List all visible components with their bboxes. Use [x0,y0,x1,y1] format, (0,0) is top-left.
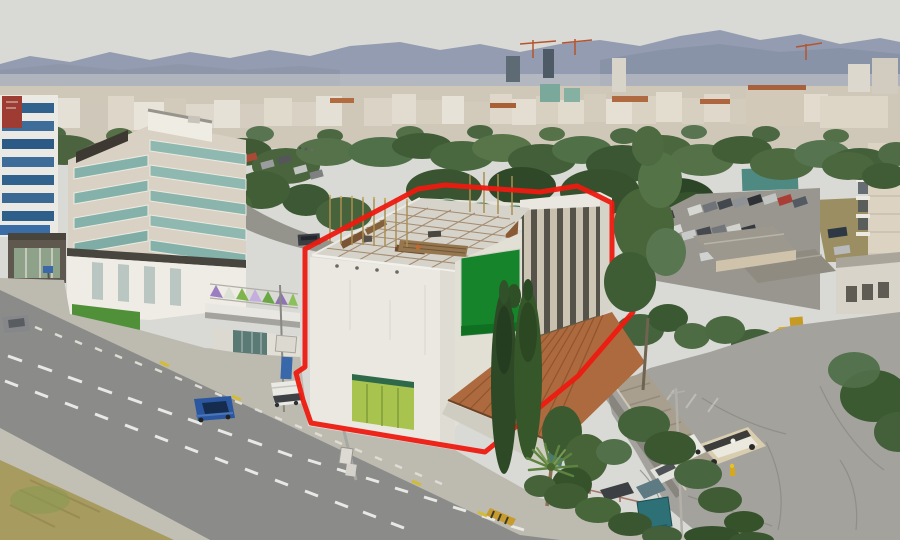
city-skyline-17 [416,100,442,124]
foreground-trees-26 [674,459,722,489]
city-skyline-9 [214,100,240,128]
white-tower [612,58,626,92]
facade-fin [563,202,570,328]
city-skyline-60 [681,125,707,139]
left-buildings-3 [2,139,54,149]
city-skyline-47 [540,84,560,102]
orange-roof [330,98,354,103]
shop-windows [14,248,60,278]
foreground-trees-18 [547,463,555,471]
facade-fin [589,199,596,320]
subject-building-54 [329,195,331,197]
subject-building-59 [384,198,386,200]
facade-fin [550,204,557,333]
city-skyline-27 [656,92,682,122]
left-buildings-6 [2,193,54,203]
subject-building-38 [375,268,379,272]
parapet-pane-lilac [249,289,262,302]
billboard [275,335,296,353]
road-sign [345,463,357,476]
city-skyline-23 [558,100,584,124]
city-skyline-25 [606,99,632,124]
foreground-trees-27 [698,487,742,513]
hi-vis-worker [730,464,734,468]
parking-area-28 [705,316,745,344]
city-skyline-38 [820,96,888,128]
city-skyline-10 [240,104,264,128]
city-skyline-12 [292,102,316,126]
orange-roof [612,96,648,102]
far-right-buildings-20 [862,284,873,300]
left-buildings-4 [2,157,54,167]
subject-building-56 [351,196,353,198]
facade-fin [576,200,583,324]
pedestrian [299,147,302,150]
subject-building-61 [406,199,408,201]
city-skyline-5 [108,96,134,130]
orange-roof [748,85,806,90]
city-skyline-19 [464,102,490,124]
foreground-trees-28 [596,439,632,465]
scene-svg [0,0,900,540]
bottom-right-lot-15 [731,439,736,444]
red-banner [2,96,22,128]
bottom-right-lot-24 [730,468,735,476]
ground-18 [202,401,229,414]
city-skyline-29 [704,94,730,122]
ground-21 [226,415,231,420]
city-skyline-58 [539,127,565,141]
subject-building-34 [440,270,455,448]
foreground-trees-25 [644,431,696,465]
glass-door [92,262,103,300]
far-right-buildings-21 [878,282,889,298]
foreground-trees-5 [523,279,533,301]
city-skyline-24 [584,94,606,122]
city-skyline-3 [56,98,80,128]
glass-door [144,266,155,304]
kiosk-22 [294,401,298,405]
tree-band-7 [296,138,356,166]
aerial-property-photo [0,0,900,540]
city-skyline-11 [264,98,292,126]
left-buildings-12 [8,233,66,240]
kiosk-11 [213,327,233,352]
city-skyline-15 [364,98,392,126]
city-skyline-37 [746,88,804,126]
far-right-buildings-19 [846,286,857,302]
ground-20 [199,418,204,423]
orange-roof [700,99,730,104]
shop-glass [233,330,267,355]
street-sign [43,266,53,273]
subject-building-36 [335,264,339,268]
city-skyline-48 [564,88,580,102]
bottom-right-lot-14 [749,444,755,450]
blue-pillar-sign [280,357,292,380]
balcony [856,196,870,200]
city-skyline-16 [392,94,416,124]
left-buildings-5 [2,175,54,185]
far-right-buildings-10 [858,200,868,212]
subject-building-39 [395,270,399,274]
foreground-trees-3 [519,302,537,362]
city-skyline-21 [512,99,536,125]
city-skyline-4 [80,104,108,130]
foreground-trees-4 [499,280,509,304]
glass-door [118,264,129,302]
subject-building-57 [362,197,364,199]
solar-heater [188,115,201,123]
left-buildings-7 [2,211,54,221]
orange-roof [490,103,516,108]
parapet-pane-green [262,291,275,304]
far-right-buildings-12 [858,218,868,230]
foreground-trees-13 [646,228,686,276]
city-skyline-35 [848,64,870,92]
glass-tower [506,56,520,82]
city-skyline-18 [442,96,464,124]
foreground-trees-2 [496,306,512,374]
road-sign [339,447,353,465]
balcony [856,232,870,236]
city-skyline-20 [490,94,512,124]
kiosk-21 [275,403,279,407]
city-skyline-14 [342,102,364,126]
balcony [856,214,870,218]
subject-building-30 [416,245,421,250]
foreground-trees-32 [828,352,880,388]
subject-building-55 [340,196,342,198]
subject-building-58 [373,197,375,199]
glass-door [170,268,181,306]
parapet-pane-green [288,293,298,306]
pedestrian [311,149,314,152]
ground-5 [10,486,70,514]
subject-building-37 [355,266,359,270]
parking-area-26 [674,323,710,349]
pedestrian [305,148,308,151]
city-skyline-36 [872,58,898,94]
glass-tower [543,49,554,78]
foreground-trees-14 [632,126,664,166]
subject-building-29 [428,231,441,238]
bottom-right-lot-19 [696,450,701,455]
